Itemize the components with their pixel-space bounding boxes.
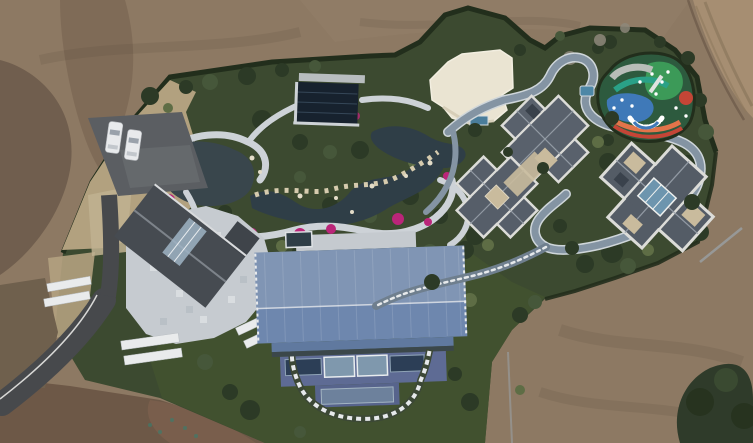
- rock-dot: [370, 184, 375, 189]
- tree: [605, 111, 619, 125]
- small-pool: [580, 86, 594, 96]
- barn-window: [357, 355, 388, 376]
- bare-tree: [620, 23, 630, 33]
- tree: [503, 147, 513, 157]
- flower-bed: [326, 224, 336, 234]
- terrace-tile: [186, 306, 193, 313]
- rock-dot: [404, 174, 408, 178]
- flower-bed: [424, 218, 432, 226]
- barn-lower-window: [321, 387, 393, 405]
- speckle: [170, 418, 174, 422]
- tree: [528, 295, 542, 309]
- rock-dot: [250, 156, 255, 161]
- tree: [141, 87, 159, 105]
- barn-window: [390, 355, 425, 372]
- rock-dot: [334, 196, 338, 200]
- tree: [553, 219, 567, 233]
- barn-window: [324, 356, 355, 377]
- children-playground: [598, 53, 695, 142]
- tree: [512, 307, 528, 323]
- terrace-tile: [176, 290, 183, 297]
- glass-pavilion: [293, 73, 365, 125]
- equipment-dot: [650, 72, 653, 75]
- equipment-dot: [612, 106, 615, 109]
- aerial-photo: [0, 0, 753, 443]
- terrace-tile: [200, 316, 207, 323]
- tree: [240, 400, 260, 420]
- terrace-tile: [160, 318, 167, 325]
- playground-red-patch: [679, 91, 693, 105]
- tree: [468, 123, 482, 137]
- grove-tree: [686, 388, 714, 416]
- terrace-tile: [240, 276, 247, 283]
- tree: [698, 124, 714, 140]
- rock-dot: [298, 194, 303, 199]
- barn-spa-pool: [286, 232, 313, 248]
- tree: [448, 367, 462, 381]
- rock-dot: [350, 210, 354, 214]
- equipment-dot: [660, 80, 663, 83]
- equipment-dot: [654, 92, 657, 95]
- tree: [351, 141, 369, 159]
- tree: [238, 67, 256, 85]
- speckle: [183, 426, 187, 430]
- pavilion-west-rim: [295, 82, 296, 123]
- tree: [309, 60, 321, 72]
- bare-tree: [594, 34, 606, 46]
- equipment-dot: [630, 104, 633, 107]
- tree: [684, 194, 700, 210]
- tree: [222, 384, 238, 400]
- tree: [292, 134, 308, 150]
- driveway-upper: [108, 195, 111, 296]
- tree: [323, 145, 337, 159]
- tree: [514, 44, 526, 56]
- tree: [537, 162, 549, 174]
- tree: [620, 258, 636, 274]
- equipment-dot: [684, 114, 687, 117]
- tree: [424, 274, 440, 290]
- tree: [275, 63, 289, 77]
- flower-bed: [392, 213, 404, 225]
- speckle: [194, 434, 198, 438]
- tree: [654, 36, 666, 48]
- tree: [592, 136, 604, 148]
- tree: [515, 385, 525, 395]
- speckle: [158, 430, 162, 434]
- aerial-photo-canvas: [0, 0, 753, 443]
- terrace-tile: [228, 296, 235, 303]
- tree: [576, 255, 594, 273]
- equipment-dot: [666, 70, 669, 73]
- tree: [179, 80, 193, 94]
- equipment-dot: [674, 106, 677, 109]
- rock-dot: [258, 170, 262, 174]
- tree: [565, 241, 579, 255]
- tree: [197, 354, 213, 370]
- grove-tree: [714, 368, 738, 392]
- speckle: [148, 423, 152, 427]
- tree: [294, 426, 306, 438]
- tree: [602, 134, 614, 146]
- tree: [482, 239, 494, 251]
- tree: [294, 171, 306, 183]
- tree: [202, 74, 218, 90]
- equipment-dot: [620, 98, 623, 101]
- rock-dot: [428, 161, 433, 166]
- tree: [163, 103, 173, 113]
- tree: [461, 393, 479, 411]
- tree: [555, 31, 565, 41]
- equipment-dot: [638, 80, 641, 83]
